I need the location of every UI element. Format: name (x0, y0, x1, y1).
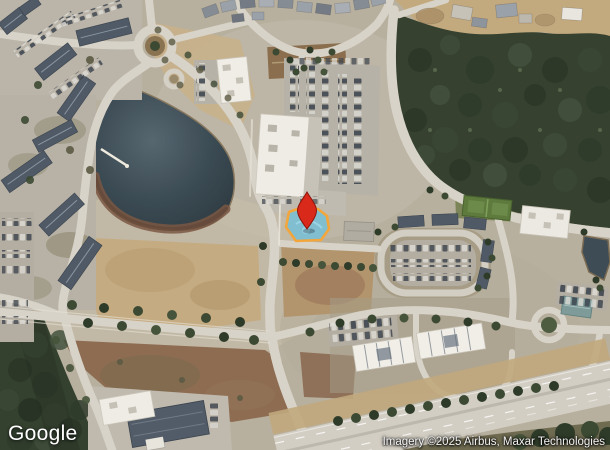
google-logo[interactable]: Google (8, 422, 78, 446)
map-canvas[interactable]: Google Imagery ©2025 Airbus, Maxar Techn… (0, 0, 610, 450)
satellite-imagery (0, 0, 610, 450)
store-building (255, 114, 322, 198)
map-attribution: Imagery ©2025 Airbus, Maxar Technologies (383, 436, 605, 448)
